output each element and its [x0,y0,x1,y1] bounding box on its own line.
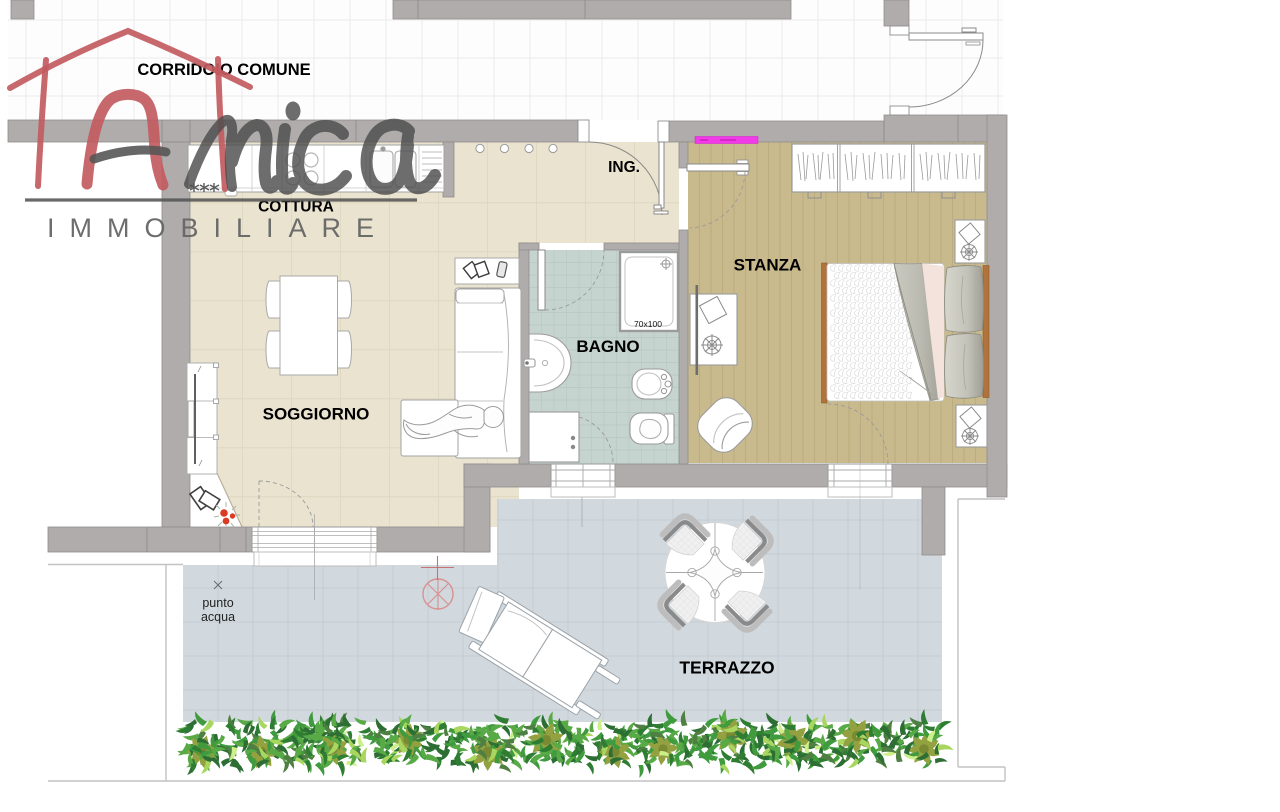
svg-text:ING.: ING. [608,159,640,176]
svg-text:STANZA: STANZA [734,256,802,275]
svg-text:BAGNO: BAGNO [576,337,639,356]
svg-text:acqua: acqua [201,610,235,624]
svg-text:SOGGIORNO: SOGGIORNO [263,405,370,424]
svg-text:IMMOBILIARE: IMMOBILIARE [47,213,389,243]
svg-text:punto: punto [202,596,233,610]
svg-text:70x100: 70x100 [634,319,662,329]
svg-text:TERRAZZO: TERRAZZO [679,658,774,678]
